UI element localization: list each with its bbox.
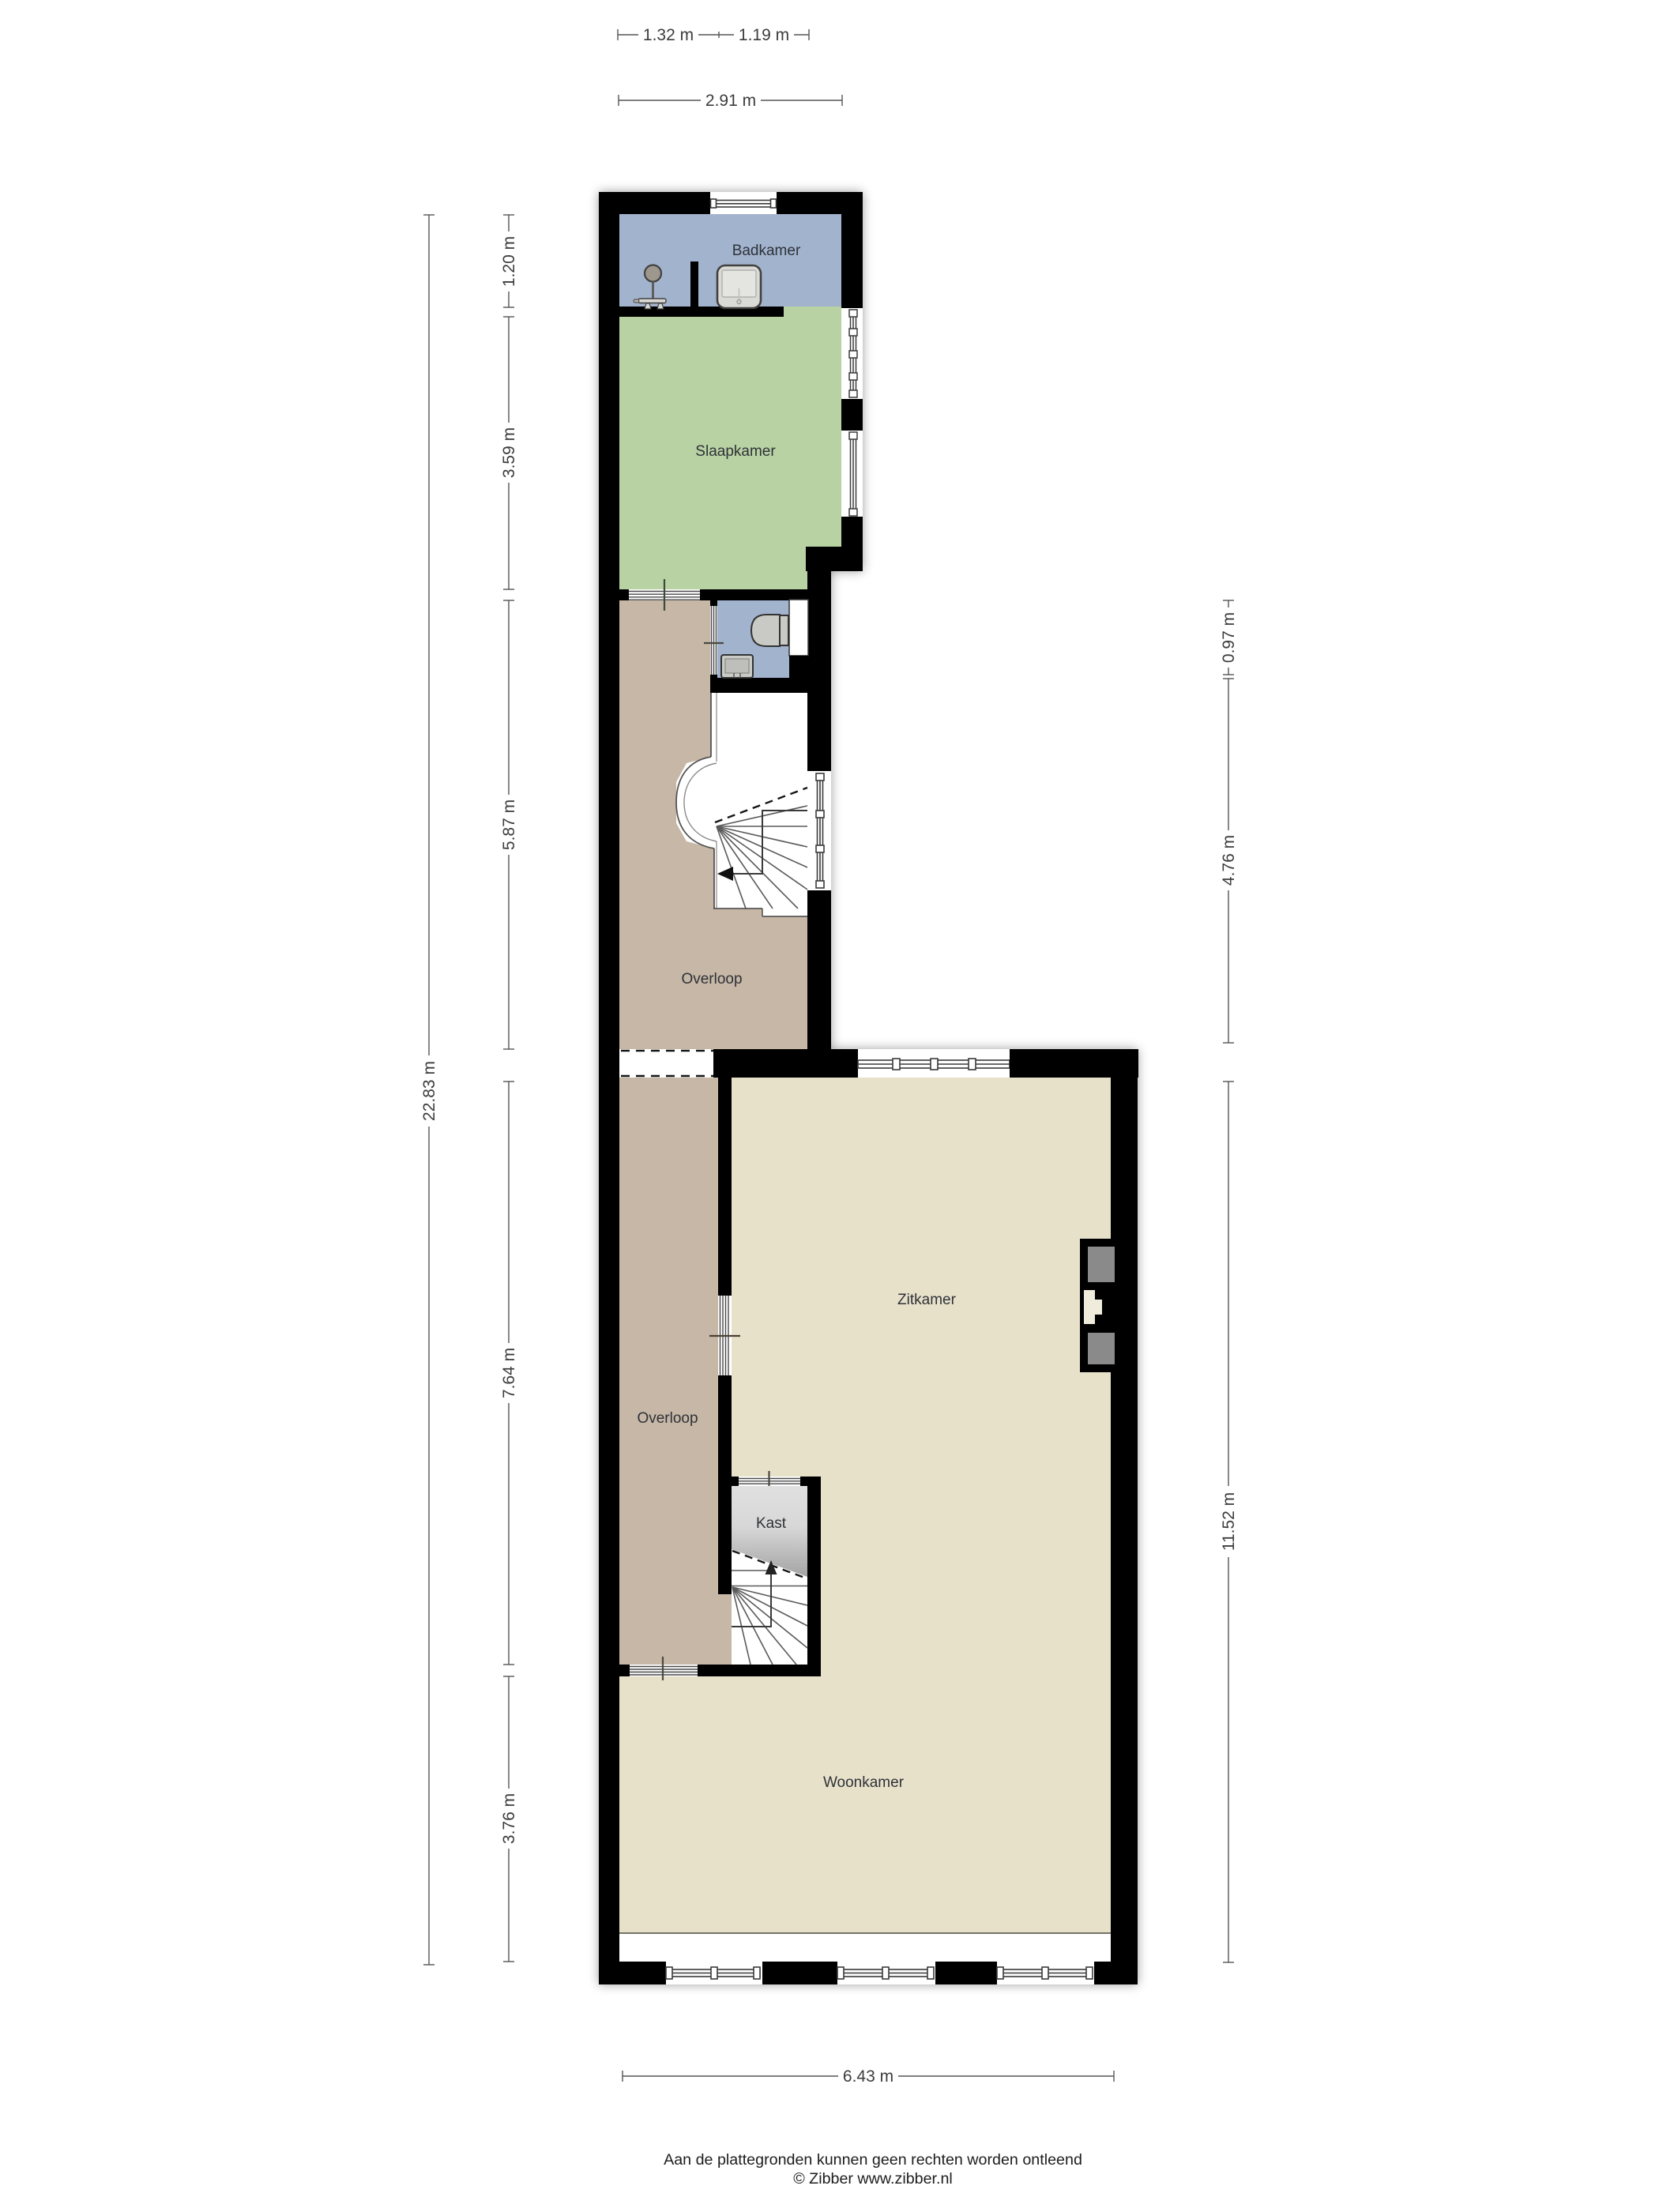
- svg-text:5.87 m: 5.87 m: [500, 799, 518, 850]
- svg-text:2.91 m: 2.91 m: [705, 92, 756, 110]
- svg-text:3.59 m: 3.59 m: [500, 427, 518, 478]
- svg-text:3.76 m: 3.76 m: [500, 1793, 518, 1844]
- svg-text:4.76 m: 4.76 m: [1220, 835, 1238, 886]
- svg-text:1.19 m: 1.19 m: [739, 26, 789, 44]
- svg-text:© Zibber www.zibber.nl: © Zibber www.zibber.nl: [793, 2170, 953, 2188]
- svg-text:Overloop: Overloop: [637, 1410, 698, 1427]
- svg-text:Woonkamer: Woonkamer: [823, 1774, 905, 1791]
- svg-text:Kast: Kast: [756, 1515, 787, 1532]
- svg-text:7.64 m: 7.64 m: [500, 1348, 518, 1398]
- svg-text:1.20 m: 1.20 m: [500, 236, 518, 287]
- svg-text:1.32 m: 1.32 m: [643, 26, 694, 44]
- svg-text:22.83 m: 22.83 m: [420, 1061, 438, 1121]
- svg-text:Overloop: Overloop: [681, 971, 742, 987]
- svg-text:Zitkamer: Zitkamer: [897, 1292, 957, 1308]
- svg-text:Aan de plattegronden kunnen ge: Aan de plattegronden kunnen geen rechten…: [664, 2151, 1082, 2169]
- svg-text:0.97 m: 0.97 m: [1220, 612, 1238, 663]
- svg-text:11.52 m: 11.52 m: [1220, 1492, 1238, 1551]
- svg-text:Slaapkamer: Slaapkamer: [695, 443, 776, 460]
- svg-text:Badkamer: Badkamer: [732, 243, 801, 259]
- svg-text:6.43 m: 6.43 m: [843, 2067, 893, 2086]
